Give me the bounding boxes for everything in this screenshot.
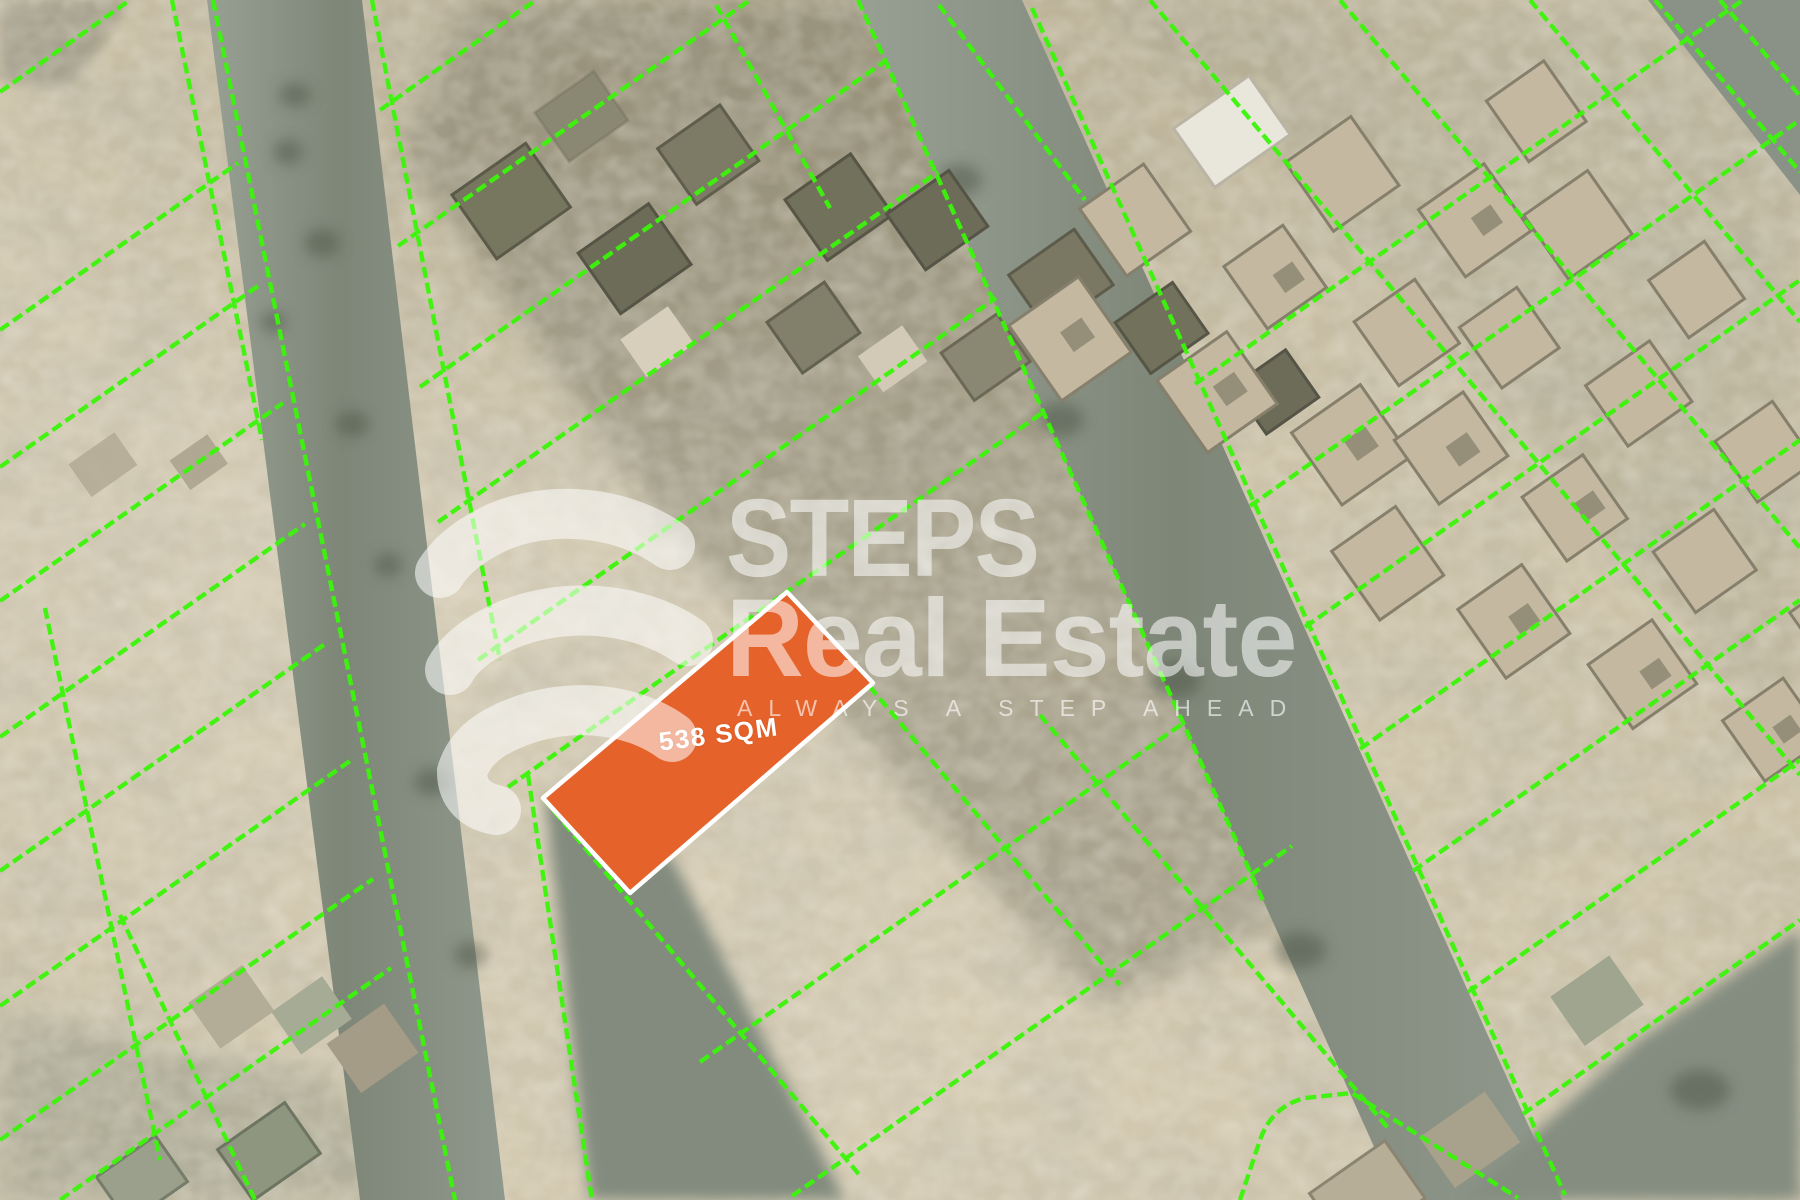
satellite-map: 538 SQM STEPS Real Estate ALWAYS A STEP …: [0, 0, 1800, 1200]
satellite-map-canvas: [0, 0, 1800, 1200]
